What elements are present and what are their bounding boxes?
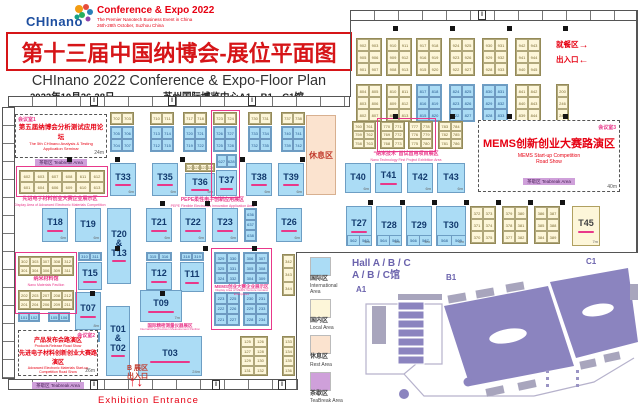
map-label-b1: B1 [446, 273, 457, 282]
booth-T11: T11 [180, 262, 204, 292]
booth-T29: T296m566567 [406, 206, 432, 246]
booth-block: 733734732735 [248, 126, 272, 152]
pillar [160, 201, 165, 206]
booth-block: 760761759762758763 [352, 121, 376, 149]
booth-block: 636637638 [244, 208, 257, 242]
meeting-room-2-tag: 会议室2 [77, 332, 95, 339]
logo-dots-icon [72, 2, 94, 26]
pillar [450, 114, 455, 119]
pepe-zone-frame [211, 110, 240, 198]
meeting-room-2: 会议室2 产品发布会路演区 Products Release Road Show… [18, 330, 98, 376]
pillar [393, 26, 398, 31]
pillar [180, 157, 185, 162]
pillar [115, 246, 120, 251]
booth-block: 902903905906901907 [356, 38, 382, 76]
pillar [560, 200, 565, 205]
legend-rest-swatch [310, 335, 331, 354]
booth-block: 702703 [110, 112, 134, 125]
teabreak-chip: 茶歇区 Teabreak Area [35, 159, 87, 166]
booth-block: 372373371374370375 [470, 206, 496, 244]
pavilion-zone-label: 纳米材料馆Nano Materials Pavilion [15, 277, 77, 287]
meeting-room-1-en2: Application Seminar [16, 146, 106, 151]
booth-block: 830831829832828833 [482, 84, 508, 122]
booth-block: 910911909912908913 [386, 38, 412, 76]
title-box: 第十三届中国纳博会-展位平面图 [6, 32, 352, 71]
mems-zone-label: MEMS创业大赛企业展示区Display Area of MEMS Ventur… [211, 284, 272, 296]
expo-tagline3: 26th-28th October, Suzhou China [97, 23, 164, 28]
booth-T21: T216m [146, 208, 172, 242]
map-title: Hall A / B / CA / B / C馆 [352, 258, 411, 282]
booth-T42: T426m [407, 163, 433, 193]
teabreak-chip: 茶歇区 Teabreak Area [32, 382, 84, 389]
booth-T19: T196m [75, 208, 101, 242]
expo-tagline: Conference & Expo 2022 [97, 5, 214, 16]
booth-block: 737738 [281, 112, 305, 125]
meeting-room-2-dim: 26m [85, 368, 95, 374]
pepe-zone-label: PEPE柔性电子创新应用展区PEPE Flexible Electronics … [165, 198, 260, 208]
booth-T23: T236m [212, 208, 238, 242]
pillar [90, 291, 95, 296]
booth-block: 924925923926922927 [449, 38, 475, 76]
legend-local-swatch [310, 299, 331, 318]
left-arrow-icon: ← [579, 55, 589, 66]
pillar [450, 26, 455, 31]
legend-international-swatch [310, 257, 331, 276]
booth-block: 342343344 [282, 254, 295, 296]
pillar [496, 200, 501, 205]
pillar [160, 291, 165, 296]
top-wall-left [8, 96, 350, 107]
adv-materials-zone-frame [16, 166, 108, 197]
booth-block: 133134135136 [282, 336, 295, 376]
booth-T12: T12 [146, 262, 172, 290]
booth-block: 379380378381377382 [502, 206, 528, 244]
door-icon: ‖ [212, 380, 220, 390]
door-icon: ‖ [168, 96, 176, 106]
left-wall [2, 107, 15, 379]
pillar [115, 157, 120, 162]
precision-zone-label: 国际精密测量仪器展区International Precision Measur… [134, 323, 206, 332]
booth-block: 783784782785781786 [438, 121, 463, 149]
booth-T39: T396m [278, 163, 304, 196]
meeting-room-1-dim: 24m [94, 150, 104, 156]
top-wall-right [350, 10, 637, 21]
meeting-room-3-tag: 会议室3 [598, 124, 616, 131]
booth-T41: T41 [375, 163, 402, 193]
booth-block: 810811809812808813 [386, 84, 412, 122]
booth-T38: T386m [246, 163, 272, 196]
entrance-arrows-icon: ↑↓ [129, 374, 144, 389]
right-wall [636, 10, 638, 253]
booth-block: 705706704707 [110, 126, 134, 152]
map-label-a1: A1 [356, 285, 367, 294]
meeting-room-1-title: 第五届纳博会分析测试应用论坛 [16, 121, 106, 141]
pillar [563, 114, 568, 119]
booth-T22: T226m [180, 208, 206, 242]
booth-block: 125126127128129130131132 [240, 336, 268, 376]
legend-teabreak-swatch [310, 372, 331, 391]
door-icon: ‖ [90, 96, 98, 106]
booth-T45: T457m [572, 206, 600, 246]
booth-block: 713714712715 [150, 126, 174, 152]
door-icon: ‖ [278, 380, 286, 390]
meeting-room-1: 会议室1 第五届纳博会分析测试应用论坛 The 5th CHInano Anal… [15, 114, 107, 158]
booth-block: 817818816819815820 [416, 84, 442, 122]
exhibition-entrance-label: Exhibition Entrance [98, 395, 199, 406]
page-title-cn: 第十三届中国纳博会-展位平面图 [21, 36, 336, 68]
pillar [400, 200, 405, 205]
booth-T35: T356m [152, 163, 178, 196]
booth-T15: T15 [78, 262, 102, 290]
floor-plan: CHInano Conference & Expo 2022 The Premi… [0, 0, 640, 409]
booth-T18: T186m [42, 208, 68, 242]
pillar [300, 157, 305, 162]
meeting-room-1-tag: 会议室1 [18, 116, 36, 123]
booth-T28: T286m564565 [376, 206, 402, 246]
page-title-en: CHInano 2022 Conference & Expo-Floor Pla… [6, 73, 352, 89]
pillar [464, 200, 469, 205]
pillar [432, 200, 437, 205]
meeting-room-3: 会议室3 MEMS创新创业大赛路演区 MEMS Start-up Competi… [478, 120, 620, 192]
nano-first-zone-frame [377, 118, 436, 152]
mems-roadshow-title: MEMS创新创业大赛路演区 [479, 135, 619, 151]
booth-T43: T436m [437, 163, 465, 193]
door-icon: ‖ [478, 10, 486, 20]
pillar [507, 114, 512, 119]
dining-exit-note: 就餐区→ 出入口← [556, 38, 589, 68]
meeting-room-3-dim: 40m [607, 184, 617, 190]
booth-T26: T266m [276, 208, 302, 242]
pillar [205, 201, 210, 206]
teabreak-chip: 茶歇区 Teabreak Area [523, 178, 575, 185]
mems-roadshow-en2: Road Show [479, 159, 619, 165]
booth-T27: T276m562563 [346, 206, 372, 246]
door-icon: ‖ [248, 96, 256, 106]
booth-T40: T406m [345, 163, 371, 193]
inset-left-line [296, 252, 297, 380]
booth-block: 310311 [78, 252, 102, 261]
booth-block: 318319 [180, 252, 204, 261]
booth-block: 717718 [183, 112, 207, 125]
booth-block: 942943941944940945 [515, 38, 541, 76]
pillar [507, 26, 512, 31]
pillar [67, 157, 72, 162]
booth-block: 740741739742 [281, 126, 305, 152]
inset-top-line [296, 252, 637, 253]
adv-materials-zone-label: 先进电子材料创业大赛企业展示区Display Area of Advanced … [8, 197, 112, 207]
pillar [252, 246, 257, 251]
booth-block: 315316 [146, 252, 172, 261]
rest-area: 休息区 [306, 115, 336, 195]
right-arrow-icon: → [579, 40, 589, 51]
pillar [368, 200, 373, 205]
booth-block: 720721719722 [183, 126, 207, 152]
booth-block: 804805803806802807 [356, 84, 382, 122]
map-label-c1: C1 [586, 257, 597, 266]
pillar [240, 157, 245, 162]
nano-first-zone-label: “纳米技术”首试首用项目展区Nano Technology First Proj… [356, 152, 456, 162]
booth-block: 730731 [248, 112, 272, 125]
booth-T07: T078m [75, 292, 101, 330]
booth-block: 917918916919915920 [416, 38, 442, 76]
pillar [252, 201, 257, 206]
meeting-room-2-title2: 先进电子材料创新创业大赛路演区 [19, 348, 97, 366]
booth-block: 841842840843839844 [515, 84, 541, 122]
booth-block: 930931929932928933 [482, 38, 508, 76]
pillar [563, 26, 568, 31]
pillar [203, 246, 208, 251]
booth-T33: T336m [110, 163, 136, 196]
pillar [528, 200, 533, 205]
booth-block: 386387385388384389 [534, 206, 560, 244]
pillar [393, 114, 398, 119]
mid-wall [350, 10, 351, 97]
booth-T30: T306m568569 [436, 206, 466, 246]
door-icon: ‖ [90, 380, 98, 390]
booth-block: 710711 [150, 112, 174, 125]
expo-tagline2: The Premier Nanotech Business Event in C… [97, 17, 192, 22]
